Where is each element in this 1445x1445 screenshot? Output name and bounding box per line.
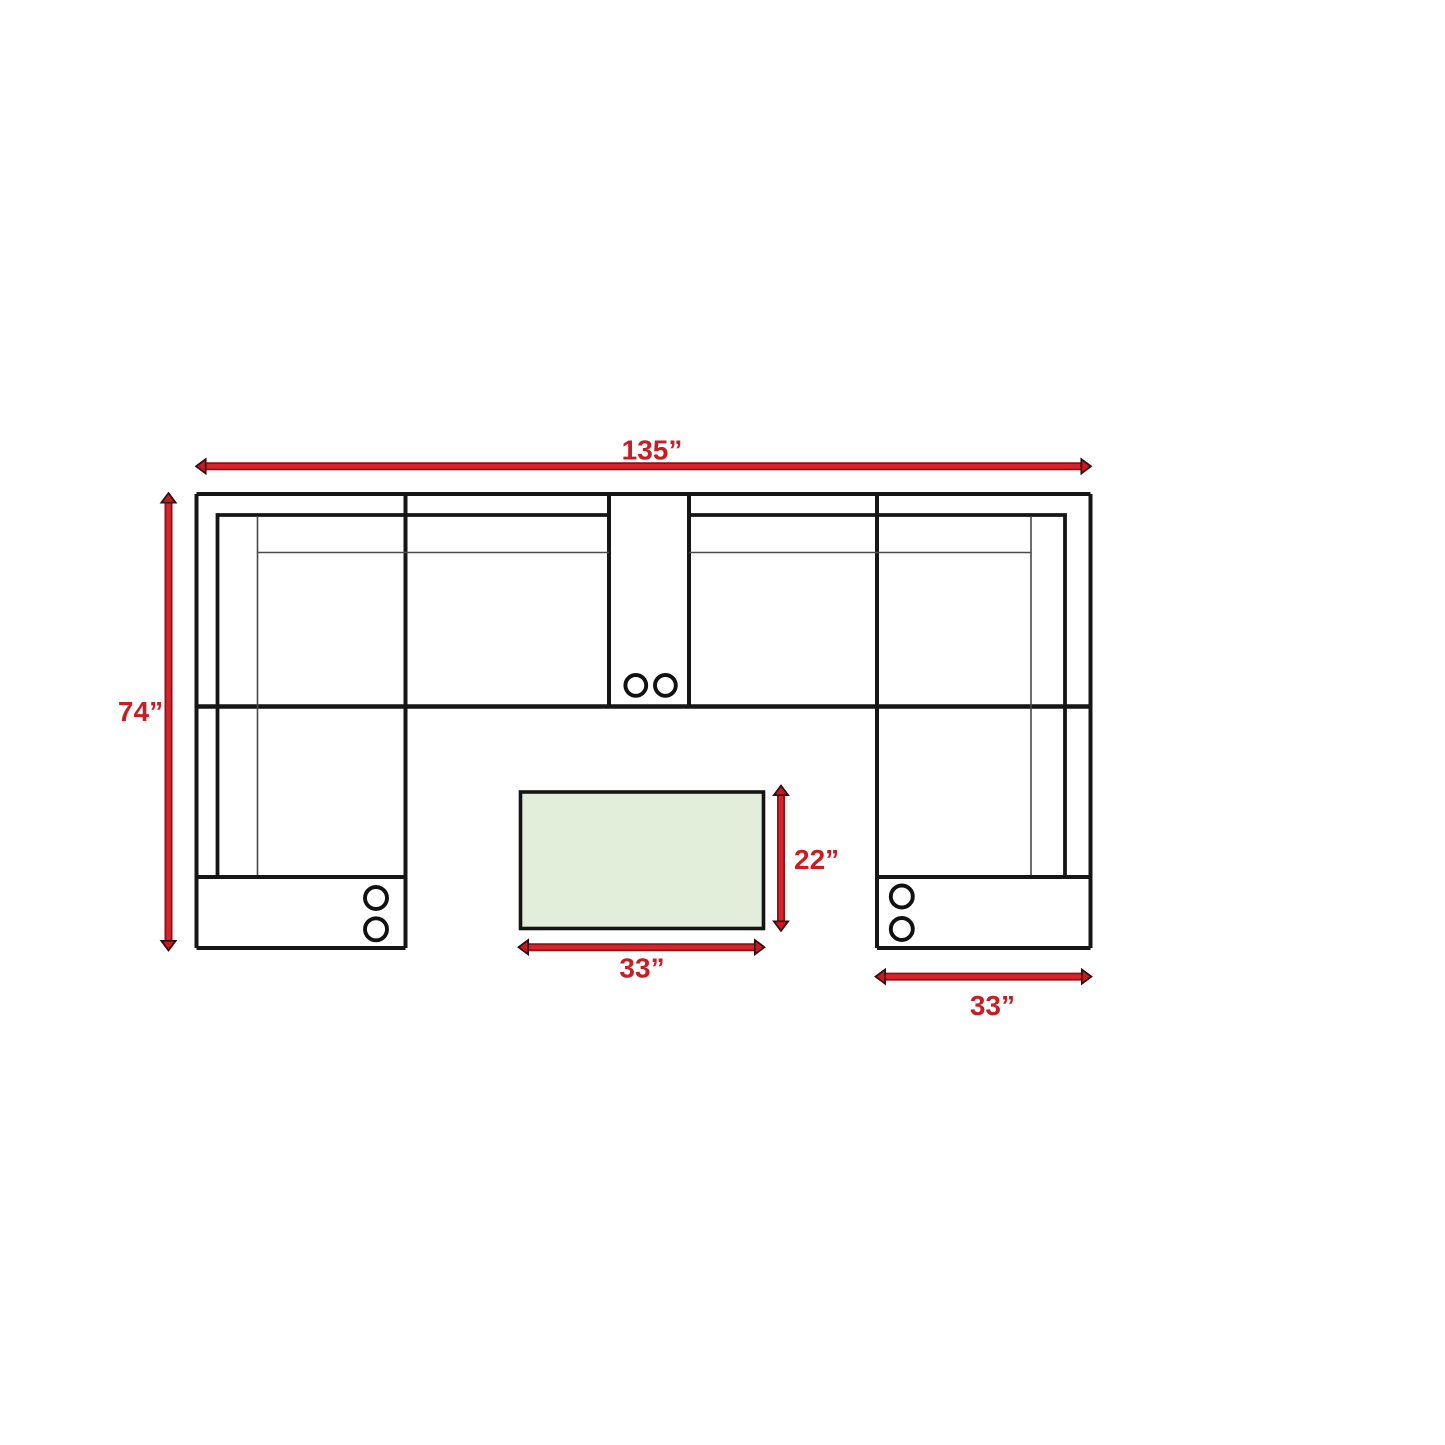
svg-text:22”: 22” bbox=[794, 844, 839, 875]
svg-text:135”: 135” bbox=[622, 435, 683, 466]
svg-text:74”: 74” bbox=[118, 696, 163, 727]
svg-text:33”: 33” bbox=[970, 990, 1015, 1021]
svg-text:33”: 33” bbox=[619, 953, 664, 984]
